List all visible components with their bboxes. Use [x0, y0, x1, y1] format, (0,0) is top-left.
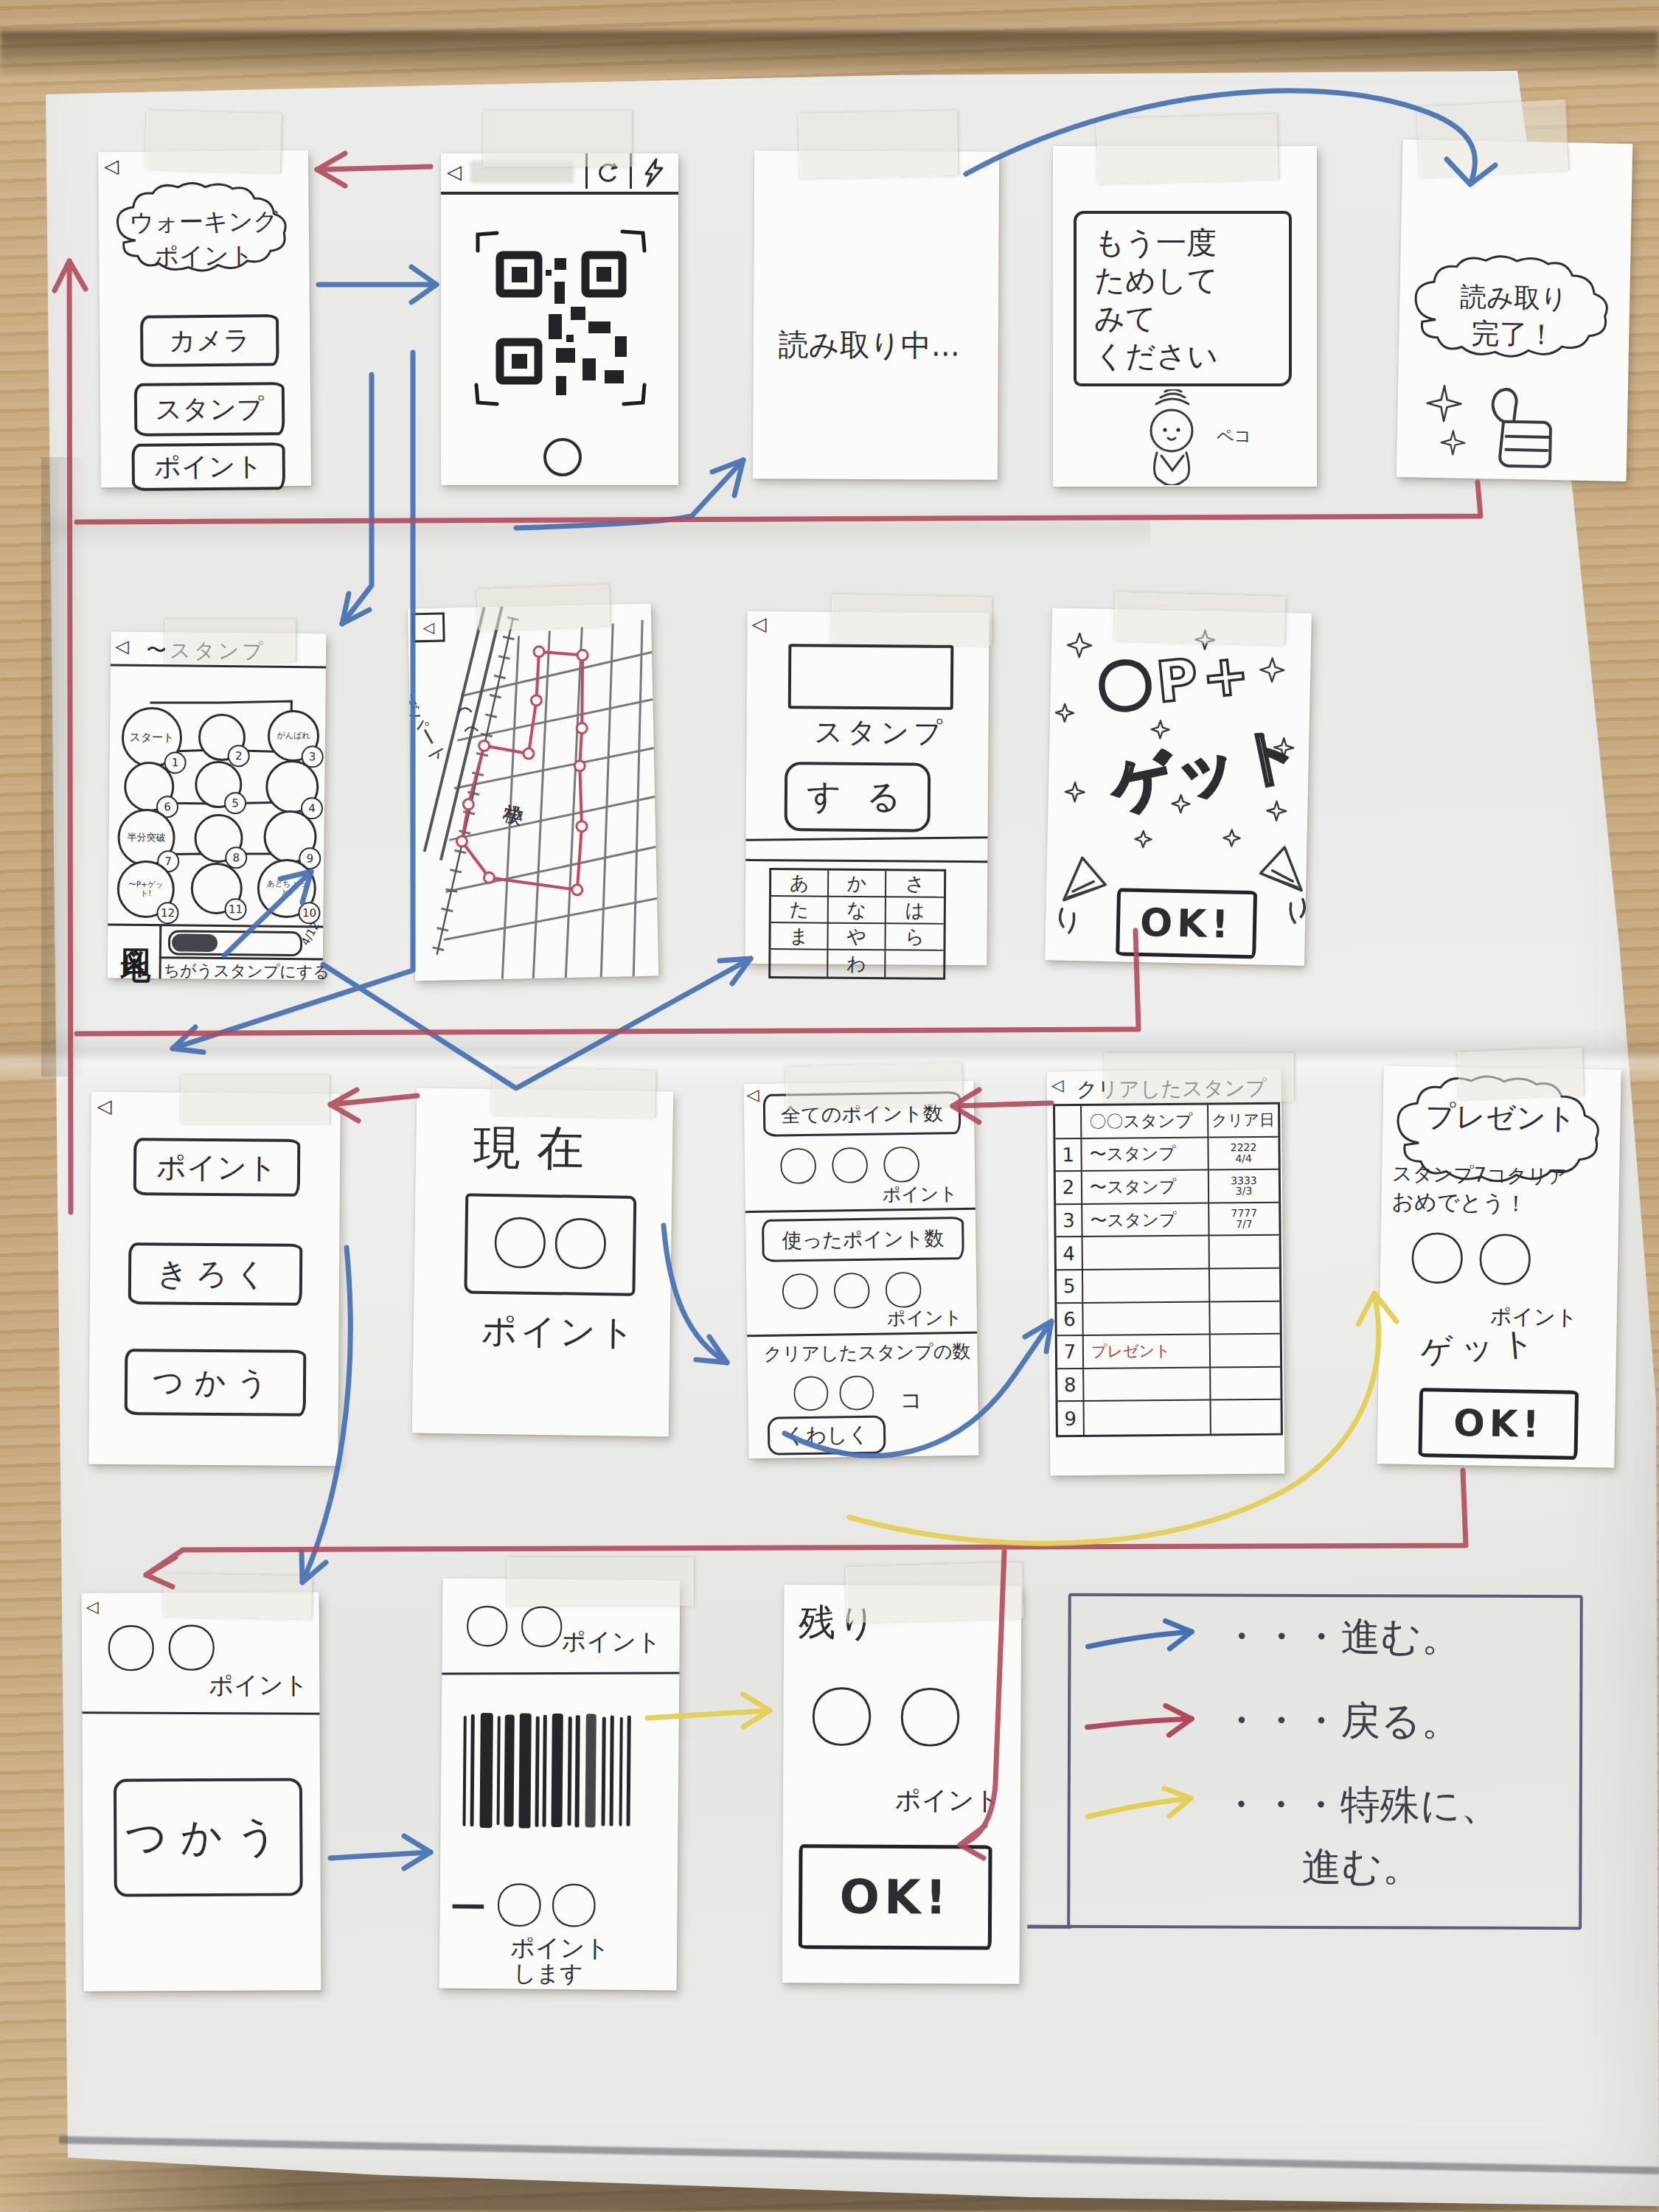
key[interactable]: は — [886, 897, 944, 925]
key[interactable]: さ — [886, 871, 944, 898]
retry-line1: もう一度 — [1094, 224, 1289, 262]
row-num: 3 — [1056, 1205, 1082, 1238]
screen-scan-done-card: 読み取り 完了！ — [1397, 139, 1633, 481]
scanning-text: 読み取り中... — [779, 324, 960, 366]
sparkle-icon — [1424, 383, 1464, 424]
stamp-spot-3[interactable]: がんばれ3 — [268, 710, 320, 762]
legend-back-label: ・・・戻る。 — [1221, 1694, 1461, 1749]
do-stamp-button[interactable]: する — [785, 762, 931, 832]
rally-progress-fill — [172, 933, 218, 952]
date-bottom: 3/3 — [1236, 1186, 1253, 1197]
legend-forward-row: ・・・進む。 — [1081, 1610, 1461, 1665]
stamp-label: 半分突破 — [127, 832, 165, 843]
retry-line3: みて — [1094, 300, 1289, 338]
stamp-spot-6[interactable]: 6 — [124, 762, 175, 813]
flash-icon[interactable] — [639, 156, 668, 189]
row-stamp — [1083, 1302, 1210, 1336]
header-cell — [1055, 1106, 1082, 1139]
screen-retry-card: もう一度 ためして みて ください ペコ — [1053, 146, 1317, 487]
done-line1: 読み取り — [1402, 278, 1626, 319]
row-date — [1210, 1236, 1279, 1269]
screen-qr-scan-card: ◁ — [441, 153, 678, 485]
legend-special-row: ・・・特殊に、 — [1081, 1778, 1501, 1833]
stamp-spot-2[interactable]: 2 — [198, 714, 246, 762]
screen-stamp-rally-card: ◁ 〜スタンプ スタート1 2 がんばれ3 4 5 6 半分突破7 8 9 あと… — [108, 631, 327, 980]
present-action: ゲット — [1419, 1321, 1544, 1374]
date-bottom: 4/4 — [1235, 1153, 1252, 1164]
rally-divider — [108, 923, 323, 928]
retry-line2: ためして — [1094, 262, 1289, 299]
camera-button[interactable]: カメラ — [140, 314, 279, 367]
current-unit: ポイント — [481, 1307, 638, 1357]
stamp-button[interactable]: スタンプ — [134, 382, 285, 437]
row-stamp: 〜スタンプ — [1082, 1171, 1209, 1205]
back-icon[interactable]: ◁ — [1051, 1077, 1064, 1093]
screen-remaining-card: 残り 〇〇 ポイント OK! — [782, 1585, 1022, 1984]
screen-home-card: ◁ ウォーキング ポイント カメラ スタンプ ポイント — [98, 150, 311, 487]
current-value-box: 〇〇 — [464, 1194, 636, 1296]
cleared-count-label: クリアしたスタンプの数 — [763, 1339, 970, 1366]
row-num: 1 — [1055, 1139, 1082, 1172]
stamp-spot-12[interactable]: 〜P+ゲット!12 — [116, 860, 175, 919]
row-num: 7 — [1057, 1336, 1084, 1369]
total-points-unit: ポイント — [882, 1181, 958, 1206]
row-date — [1211, 1335, 1280, 1368]
change-stamp-button[interactable]: ちがうスタンプにする — [164, 959, 330, 983]
row-date: 22224/4 — [1208, 1137, 1278, 1170]
current-value: 〇〇 — [490, 1204, 611, 1285]
key[interactable] — [886, 950, 943, 978]
row-num: 8 — [1057, 1369, 1084, 1402]
stamp-spot-7[interactable]: 半分突破7 — [117, 809, 175, 867]
stamp-spot-4[interactable]: 4 — [265, 760, 319, 814]
row-stamp — [1084, 1368, 1211, 1402]
back-icon[interactable]: ◁ — [104, 156, 119, 175]
row-stamp: 〜スタンプ — [1082, 1203, 1209, 1237]
present-title: プレゼント — [1384, 1095, 1618, 1140]
stamp-spot-9[interactable]: 9 — [263, 810, 317, 864]
stamp-name-input[interactable] — [788, 644, 954, 710]
row-stamp — [1083, 1237, 1210, 1270]
done-line2: 完了！ — [1402, 313, 1625, 355]
peco-mascot — [1122, 389, 1218, 485]
key[interactable]: や — [828, 924, 886, 951]
qr-code — [467, 226, 652, 410]
barcode — [459, 1710, 644, 1837]
row-num: 9 — [1058, 1402, 1085, 1435]
back-icon: ◁ — [422, 619, 434, 636]
rally-progress-bar — [168, 930, 302, 956]
tape — [477, 585, 611, 630]
legend-back-row: ・・・戻る。 — [1081, 1694, 1461, 1749]
ok-button[interactable]: OK! — [799, 1844, 992, 1950]
header-stamp: 〇〇スタンプ — [1082, 1105, 1208, 1138]
stamp-number: 5 — [224, 792, 246, 814]
present-value: 〇〇 — [1406, 1220, 1543, 1301]
legend-special-label2: 進む。 — [1301, 1840, 1422, 1895]
screen-cleared-stamps-card: ◁ クリアしたスタンプ 〇〇スタンプ クリア日 1 〜スタンプ 22224/4 … — [1047, 1070, 1285, 1476]
legend-special-label: ・・・特殊に、 — [1221, 1778, 1501, 1833]
tape — [786, 1063, 964, 1109]
stamp-spot-8[interactable]: 8 — [194, 814, 243, 863]
remaining-value: 〇〇 — [807, 1672, 984, 1764]
mascot-label: ペコ — [1217, 425, 1251, 448]
key[interactable]: か — [829, 871, 886, 898]
tape — [164, 1573, 313, 1619]
row-date — [1211, 1367, 1280, 1400]
screen-present-card: プレゼント スタンプ7コクリア おめでとう！ 〇〇 ポイント ゲット OK! — [1377, 1065, 1621, 1468]
point-button[interactable]: ポイント — [131, 442, 285, 491]
stamp-number: 12 — [156, 902, 178, 924]
row-date — [1210, 1269, 1279, 1302]
tape — [181, 1075, 330, 1124]
home-button[interactable] — [543, 438, 582, 476]
present-message2: おめでとう！ — [1391, 1186, 1527, 1219]
retry-line4: ください — [1094, 338, 1289, 375]
kana-keyboard: あかさ たなは まやら わ — [768, 868, 946, 980]
date-top: 7777 — [1231, 1208, 1257, 1219]
cleared-count-value: 〇〇 — [790, 1367, 883, 1422]
stamp-spot-10[interactable]: あとちょっと!10 — [257, 859, 316, 919]
ok-button[interactable]: OK! — [1418, 1388, 1579, 1460]
key[interactable]: わ — [828, 950, 886, 978]
divider — [747, 1332, 977, 1337]
row-date — [1210, 1301, 1279, 1335]
legend-box: ・・・進む。 ・・・戻る。 ・・・特殊に、 進む。 — [1067, 1593, 1583, 1930]
deduct-verb: します — [513, 1958, 584, 1989]
row-stamp — [1083, 1269, 1210, 1303]
row-num: 2 — [1056, 1172, 1082, 1205]
detail-button[interactable]: くわしく — [768, 1416, 886, 1455]
row-date: 33333/3 — [1209, 1170, 1279, 1203]
back-icon[interactable]: ◁ — [751, 614, 766, 633]
key[interactable]: あ — [771, 870, 829, 897]
row-date: 77777/7 — [1209, 1203, 1279, 1236]
deduct-value: −〇〇 — [447, 1872, 603, 1941]
date-top: 2222 — [1231, 1142, 1257, 1153]
key[interactable]: ま — [771, 923, 828, 950]
screen-stamp-input-card: ◁ スタンプ する あかさ たなは まやら わ — [745, 611, 989, 965]
rally-divider — [159, 924, 162, 978]
divider — [746, 836, 988, 841]
map-button[interactable]: 地図 — [116, 930, 157, 931]
tape — [165, 619, 296, 662]
used-points-label: 使ったポイント数 — [762, 1217, 964, 1262]
stamp-spot-5[interactable]: 5 — [195, 761, 243, 809]
paper-prototype-board: ◁ ウォーキング ポイント カメラ スタンプ ポイント ◁ — [0, 0, 1659, 2212]
used-points-unit: ポイント — [887, 1305, 963, 1330]
header-date: クリア日 — [1208, 1105, 1278, 1138]
back-icon[interactable]: ◁ — [747, 1087, 759, 1103]
tape — [1458, 1048, 1585, 1099]
points-get-line1: 〇P+ — [1093, 636, 1257, 728]
screen-use-points-card: ◁ 〇〇 ポイント つかう — [82, 1592, 321, 1992]
stamp-label: スタート — [129, 731, 174, 743]
back-icon[interactable]: ◁ — [115, 638, 129, 655]
rally-progress-fraction: 4/12 — [299, 919, 322, 947]
retry-message-box: もう一度 ためして みて ください — [1074, 211, 1292, 386]
row-num: 6 — [1057, 1304, 1083, 1337]
key[interactable]: な — [829, 897, 886, 925]
tape — [799, 111, 959, 178]
cleared-stamps-table: 〇〇スタンプ クリア日 1 〜スタンプ 22224/4 2 〜スタンプ 3333… — [1053, 1102, 1283, 1438]
back-icon[interactable]: ◁ — [86, 1599, 99, 1615]
stamp-label: がんばれ — [276, 731, 310, 741]
sparkle-icon — [1439, 429, 1467, 456]
tape — [846, 1562, 1024, 1623]
divider — [745, 859, 987, 863]
use-header-value: 〇〇 — [104, 1613, 226, 1685]
screen-points-menu-card: ◁ ポイント きろく つかう — [88, 1092, 341, 1466]
use-button[interactable]: つかう — [125, 1349, 307, 1416]
tape — [145, 111, 282, 173]
row-num: 4 — [1057, 1237, 1083, 1270]
tape — [484, 111, 633, 167]
tape — [507, 1557, 695, 1606]
special-arrow-icon — [1078, 1773, 1213, 1836]
current-title: 現在 — [473, 1116, 601, 1181]
map-drawing — [408, 604, 659, 981]
tape — [492, 1068, 656, 1118]
legend-border-overshoot — [1027, 1925, 1071, 1929]
tape — [831, 594, 992, 646]
key[interactable]: ら — [886, 924, 943, 951]
row-num: 5 — [1057, 1270, 1083, 1304]
app-title-line2: ポイント — [106, 239, 302, 274]
use-header-unit: ポイント — [209, 1669, 308, 1703]
row-stamp — [1085, 1401, 1211, 1435]
divider — [745, 1208, 975, 1213]
stamp-number: 11 — [224, 898, 246, 920]
tape — [1105, 1053, 1295, 1102]
ok-button[interactable]: OK! — [1116, 888, 1257, 959]
barcode-header-unit: ポイント — [561, 1625, 661, 1659]
back-icon[interactable]: ◁ — [447, 162, 462, 181]
legend-forward-label: ・・・進む。 — [1221, 1610, 1461, 1665]
back-button[interactable]: ◁ — [412, 612, 445, 642]
stamp-label: あとちょっと! — [265, 880, 308, 897]
row-stamp: 〜スタンプ — [1082, 1138, 1208, 1172]
key[interactable] — [771, 950, 828, 977]
tape — [1096, 114, 1279, 184]
tape — [1114, 592, 1287, 645]
screen-current-points-card: 現在 〇〇 ポイント — [412, 1088, 674, 1437]
screen-point-totals-card: ◁ 全てのポイント数 〇〇〇 ポイント 使ったポイント数 〇〇〇 ポイント クリ… — [743, 1081, 978, 1458]
divider — [442, 1672, 679, 1674]
key[interactable]: た — [771, 897, 829, 924]
screen-map-card: ◁ デパート 小学校 — [408, 604, 659, 981]
record-button[interactable]: きろく — [128, 1242, 303, 1306]
app-title-cloud: ウォーキング ポイント — [105, 178, 302, 292]
date-top: 3333 — [1231, 1175, 1257, 1186]
stamp-spot-11[interactable]: 11 — [190, 863, 243, 915]
row-date — [1211, 1400, 1281, 1433]
screen-barcode-card: 〇〇 ポイント −〇〇 ポイント します — [439, 1579, 681, 1991]
screen-points-get-card: 〇P+ ゲット OK! — [1045, 608, 1312, 965]
back-arrow-icon — [1079, 1694, 1212, 1748]
point-detail-button[interactable]: ポイント — [133, 1138, 301, 1197]
screen-scanning-card: 読み取り中... — [753, 150, 999, 480]
use-points-button[interactable]: つかう — [114, 1778, 303, 1896]
row-stamp-present: プレゼント — [1084, 1335, 1211, 1369]
stamp-label: 〜P+ゲット! — [125, 880, 167, 898]
done-title-cloud: 読み取り 完了！ — [1401, 250, 1626, 380]
back-icon[interactable]: ◁ — [97, 1096, 112, 1116]
thumbs-up-icon — [1467, 378, 1580, 484]
tape — [1417, 100, 1570, 178]
app-title-line1: ウォーキング — [106, 205, 302, 240]
cleared-count-unit: コ — [900, 1385, 922, 1416]
divider — [82, 1711, 319, 1715]
stamp-spot-1[interactable]: スタート1 — [122, 707, 183, 768]
remaining-unit: ポイント — [895, 1783, 1001, 1818]
date-bottom: 7/7 — [1236, 1219, 1253, 1230]
present-message1: スタンプ7コクリア — [1392, 1160, 1568, 1189]
forward-arrow-icon — [1079, 1607, 1213, 1666]
stamp-field-label: スタンプ — [814, 713, 947, 751]
